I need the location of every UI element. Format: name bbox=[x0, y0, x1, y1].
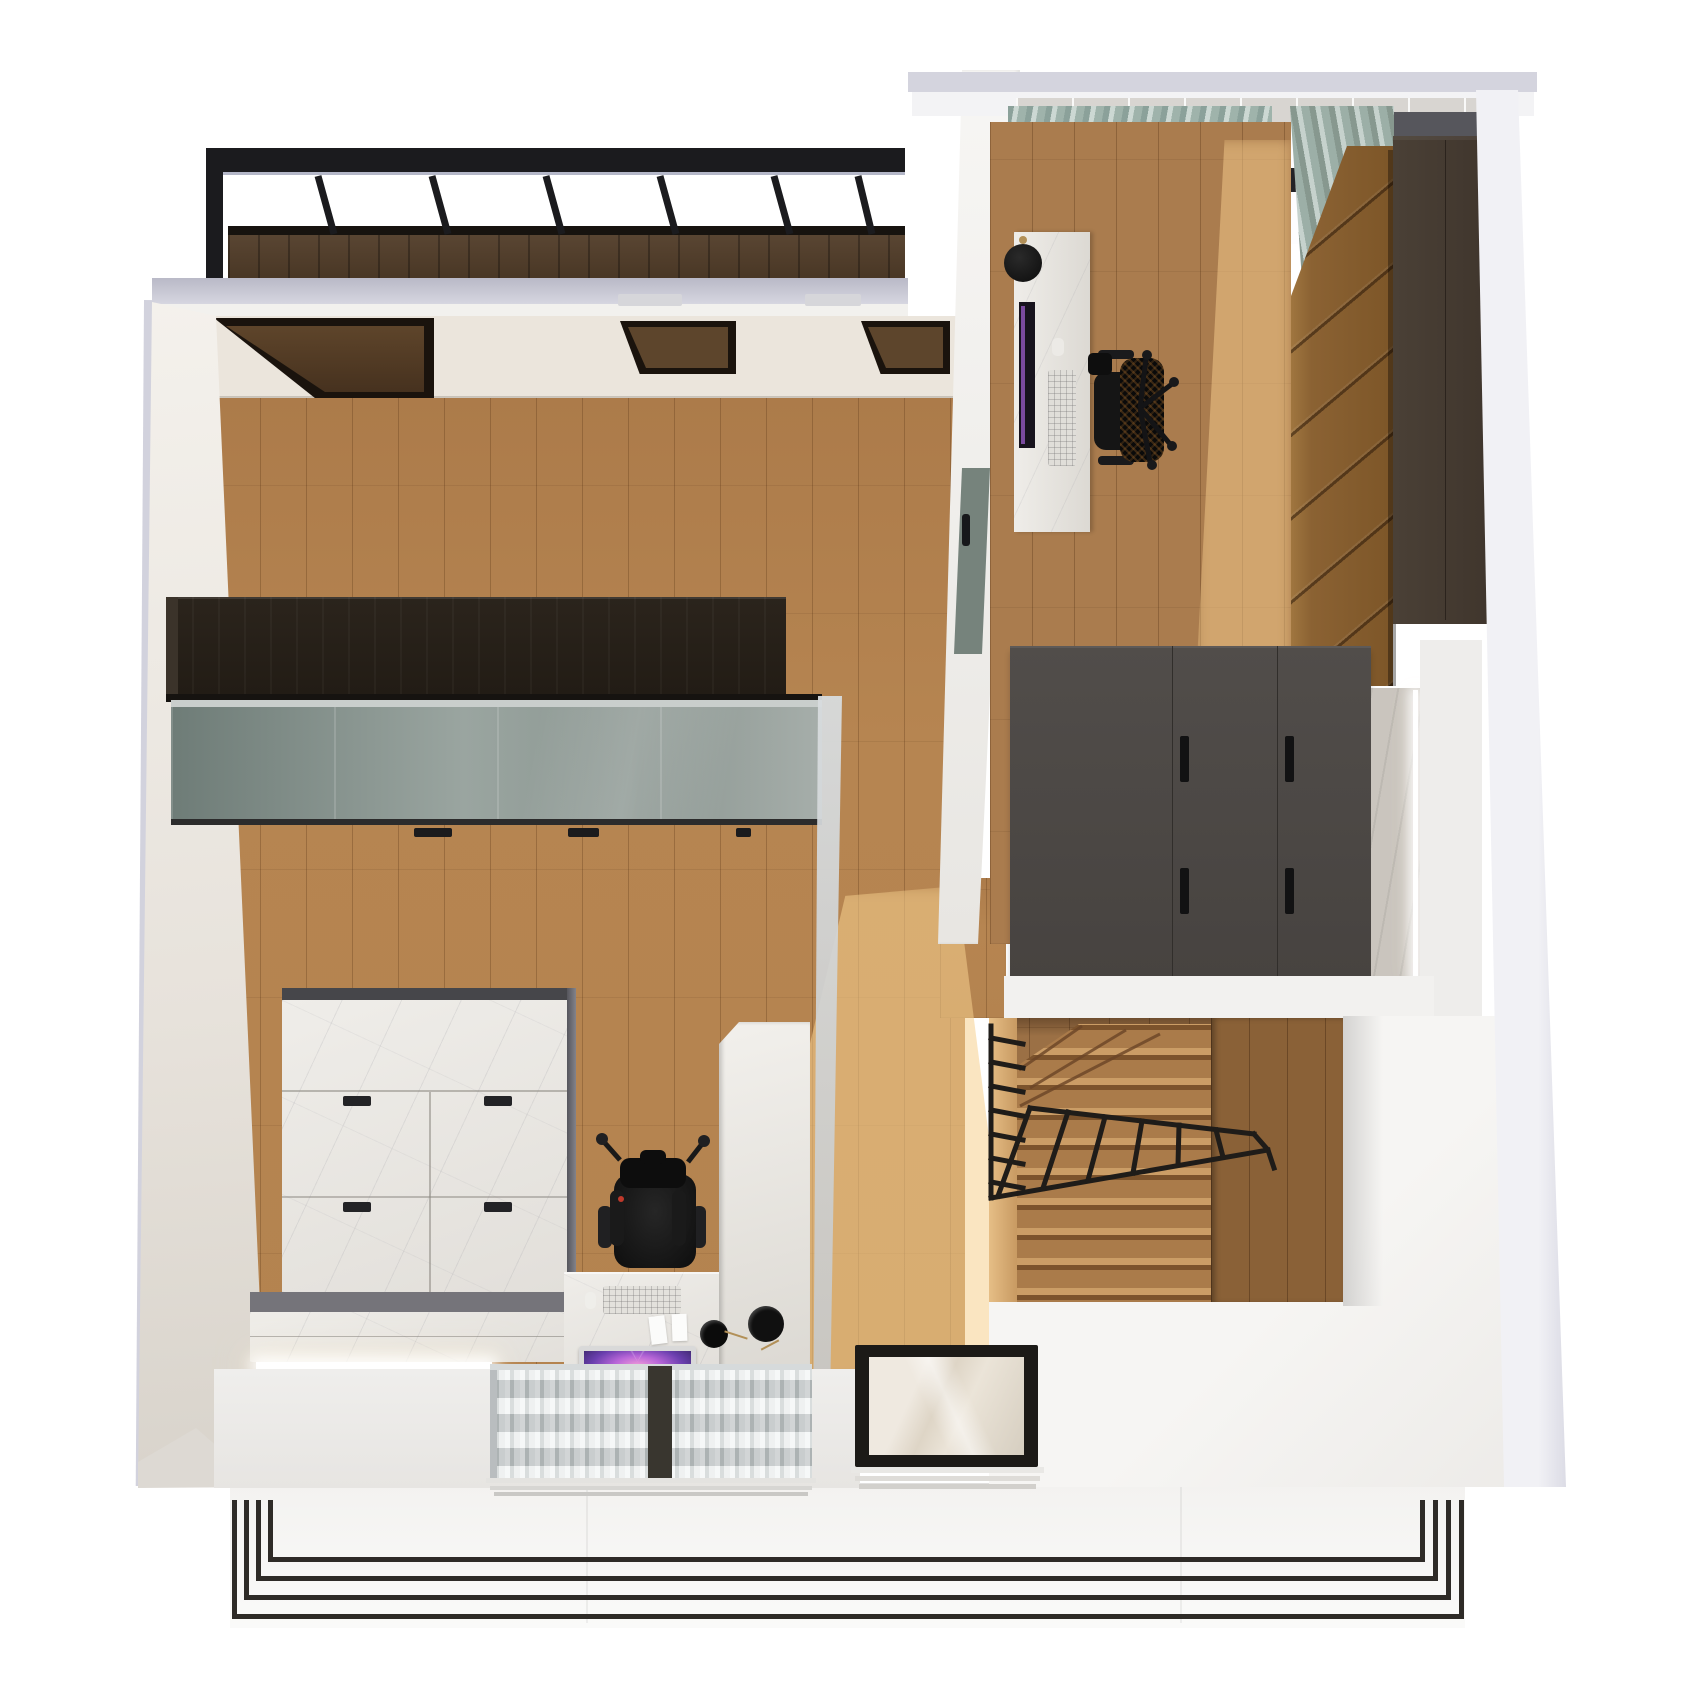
curtain-tray-step bbox=[490, 1486, 812, 1490]
curtain-divider-bar bbox=[648, 1366, 672, 1478]
ceiling-vent bbox=[805, 294, 861, 306]
disc-lamp bbox=[748, 1306, 784, 1342]
dresser-handle bbox=[1285, 736, 1294, 782]
led-strip-column bbox=[1413, 690, 1418, 984]
office-chair bbox=[1086, 348, 1166, 468]
balcony-railing-horizontal bbox=[268, 1557, 1425, 1562]
cabinet-handle bbox=[484, 1202, 512, 1212]
right-top-outer-band bbox=[908, 72, 1537, 92]
dresser-handle bbox=[1180, 868, 1189, 914]
terrace-seam bbox=[586, 1483, 588, 1623]
pergola-top-beam bbox=[206, 148, 905, 172]
chair-bolster bbox=[672, 1190, 686, 1246]
balcony-railing-post bbox=[1459, 1500, 1464, 1619]
cabinet-seam-h bbox=[282, 1196, 567, 1198]
balcony-railing-horizontal bbox=[232, 1614, 1464, 1619]
glass-door-handle bbox=[568, 828, 599, 837]
stair-treads bbox=[1017, 1018, 1211, 1304]
vanity-keyboard bbox=[603, 1286, 681, 1314]
bench-front bbox=[250, 1312, 575, 1362]
door-handle bbox=[962, 514, 970, 546]
marble-cabinet-right-edge bbox=[567, 988, 576, 1292]
balcony-railing-post bbox=[1446, 1500, 1451, 1600]
marble-cabinet-top-edge bbox=[282, 988, 575, 1000]
desk-mouse bbox=[1052, 338, 1064, 356]
stairwell-sun-strip bbox=[989, 1018, 1017, 1304]
wall-right-of-column bbox=[1420, 640, 1482, 1018]
glass-door-handle bbox=[736, 828, 751, 837]
chair-mesh-back bbox=[1120, 358, 1164, 462]
balcony-railing-post bbox=[256, 1500, 261, 1581]
floorplan-render bbox=[0, 0, 1703, 1704]
gaming-chair bbox=[596, 1146, 706, 1276]
stairwell-right-wall bbox=[1211, 1018, 1343, 1304]
cabinet-seam-h bbox=[282, 1090, 567, 1092]
terrace-floor bbox=[230, 1483, 1465, 1628]
paper-card bbox=[672, 1314, 688, 1342]
balcony-railing-horizontal bbox=[244, 1595, 1451, 1600]
led-strip-bench bbox=[256, 1362, 492, 1369]
chair-headrest bbox=[640, 1150, 666, 1164]
glass-panel-sill bbox=[851, 1467, 1044, 1473]
balcony-railing-post bbox=[268, 1500, 273, 1562]
black-wardrobe bbox=[166, 597, 786, 694]
sheer-curtain-left bbox=[490, 1364, 650, 1482]
curtain-tray-step bbox=[494, 1492, 808, 1496]
terrace-seam bbox=[1180, 1483, 1182, 1623]
black-wardrobe-endcap bbox=[166, 597, 178, 694]
chair-headrest bbox=[1088, 353, 1112, 375]
glass-top-rail bbox=[171, 700, 822, 707]
tall-cabinet-seam bbox=[1445, 140, 1446, 620]
vanity-mouse bbox=[585, 1292, 596, 1309]
pergola-left-post bbox=[206, 148, 223, 282]
cabinet-handle bbox=[343, 1202, 371, 1212]
pergola-parapet-cap bbox=[228, 226, 905, 235]
pergola-parapet-wood bbox=[228, 233, 905, 282]
curtain-tray-step bbox=[486, 1478, 816, 1483]
cabinet-seam-v bbox=[429, 1092, 431, 1292]
left-top-wall-band bbox=[152, 278, 908, 304]
glass-floor-panel-reflection bbox=[869, 1357, 1024, 1455]
glass-panel-sill bbox=[855, 1476, 1040, 1481]
curtain-rail-left-edge bbox=[490, 1364, 497, 1482]
dresser-seam bbox=[1172, 646, 1173, 978]
landing-shadow bbox=[1343, 1016, 1383, 1306]
pergola-beam-highlight bbox=[206, 172, 905, 175]
paper-card bbox=[648, 1315, 667, 1345]
disc-lamp bbox=[700, 1320, 728, 1348]
stair-top-white-strip bbox=[1004, 976, 1434, 1018]
glass-door-handle bbox=[414, 828, 452, 837]
grey-dresser bbox=[1010, 646, 1371, 978]
dresser-handle bbox=[1180, 736, 1189, 782]
glass-panel-sill bbox=[859, 1484, 1036, 1489]
balcony-railing-post bbox=[1420, 1500, 1425, 1562]
bench-top bbox=[250, 1292, 575, 1312]
dresser-handle bbox=[1285, 868, 1294, 914]
desk-keyboard bbox=[1048, 370, 1076, 466]
cabinet-handle bbox=[343, 1096, 371, 1106]
balcony-railing-horizontal bbox=[256, 1576, 1438, 1581]
ceiling-vent bbox=[618, 294, 682, 306]
pendant-lamp bbox=[1004, 244, 1042, 282]
balcony-railing-post bbox=[1433, 1500, 1438, 1581]
desk-monitor-screen-sliver bbox=[1021, 306, 1025, 444]
balcony-railing-post bbox=[244, 1500, 249, 1600]
glass-sheen bbox=[171, 707, 822, 819]
dresser-seam bbox=[1277, 646, 1278, 978]
glass-bottom-rail bbox=[171, 819, 822, 825]
sheer-curtain-right bbox=[670, 1364, 812, 1482]
cabinet-handle bbox=[484, 1096, 512, 1106]
balcony-railing-post bbox=[232, 1500, 237, 1619]
chair-red-accent bbox=[618, 1196, 624, 1202]
bench-seam bbox=[250, 1336, 575, 1337]
